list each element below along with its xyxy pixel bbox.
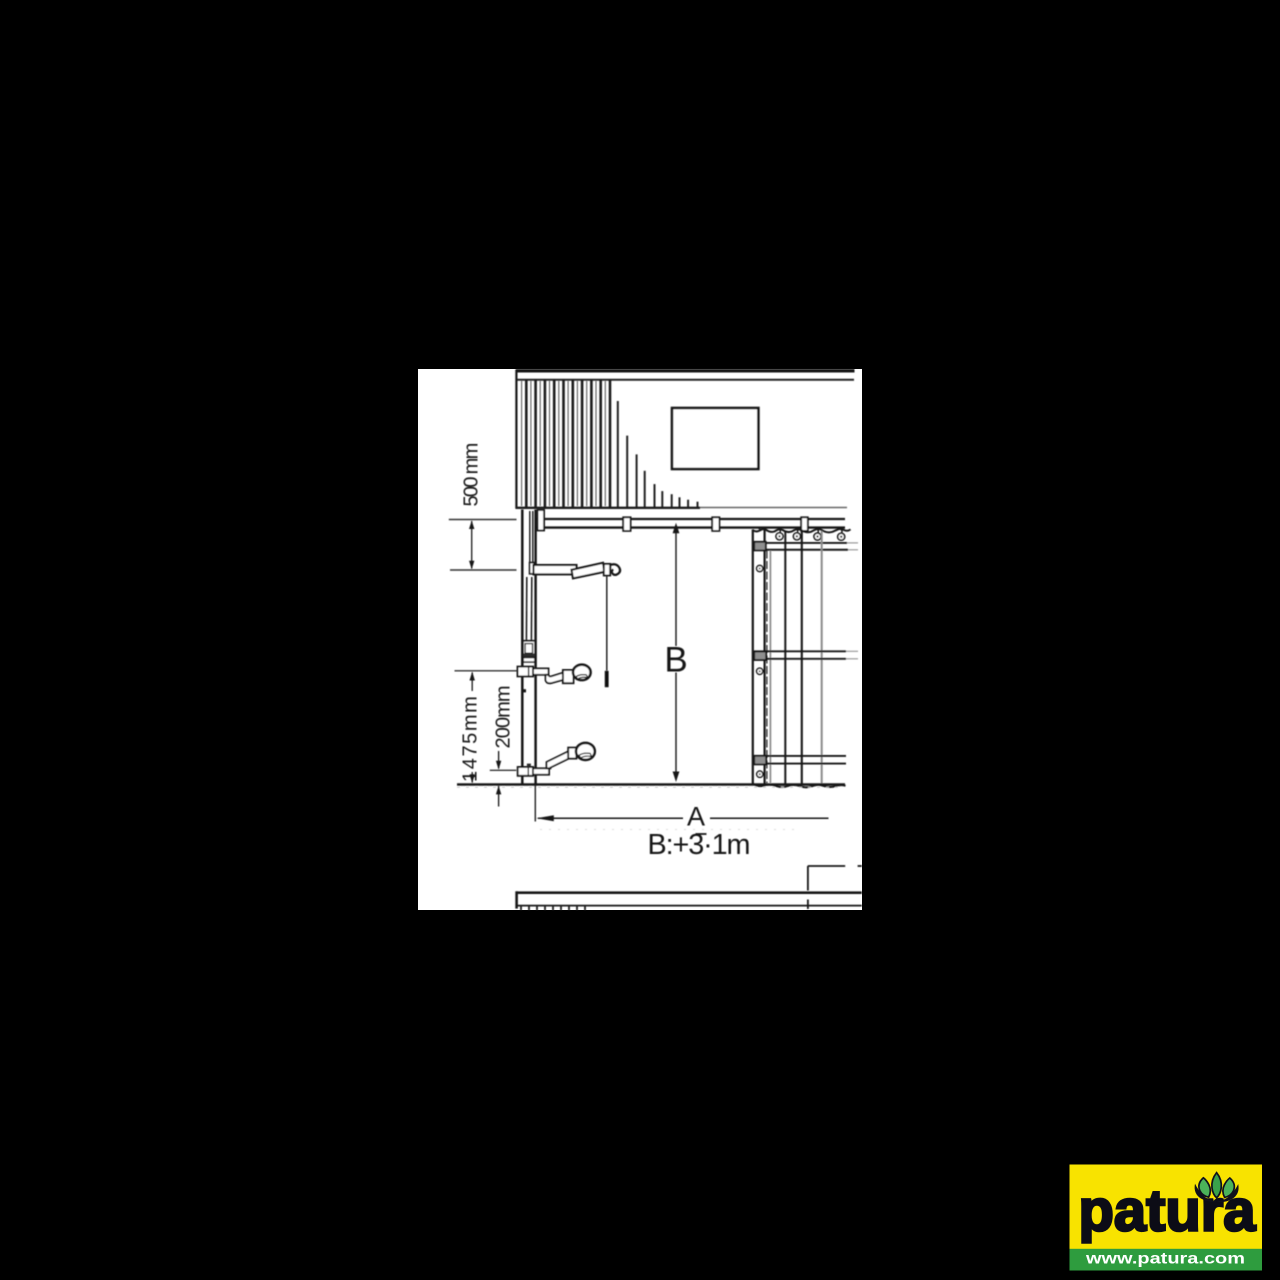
svg-text:www.patura.com: www.patura.com: [1085, 1250, 1245, 1267]
svg-text:B: B: [664, 641, 687, 680]
svg-text:500 mm: 500 mm: [461, 443, 483, 506]
svg-text:1475mm: 1475mm: [459, 695, 481, 782]
svg-text:A: A: [687, 802, 705, 832]
svg-text:200mm: 200mm: [492, 686, 514, 748]
